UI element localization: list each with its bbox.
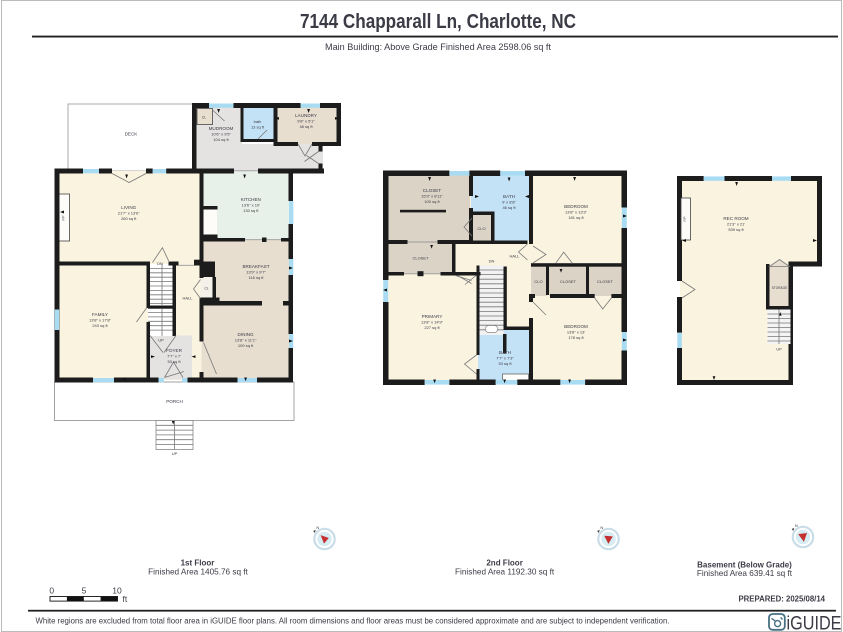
svg-text:10'6" x 9'5": 10'6" x 9'5"	[211, 132, 231, 137]
svg-text:13'6" x 10': 13'6" x 10'	[242, 203, 261, 208]
svg-text:UP: UP	[158, 338, 164, 343]
svg-text:Finished Area 639.41 sq ft: Finished Area 639.41 sq ft	[697, 569, 793, 578]
svg-text:48 sq ft: 48 sq ft	[299, 124, 313, 129]
svg-text:130 sq ft: 130 sq ft	[243, 208, 259, 213]
svg-text:5: 5	[82, 586, 87, 596]
svg-text:MUDROOM: MUDROOM	[209, 126, 234, 131]
svg-text:CLOSET: CLOSET	[560, 279, 577, 284]
svg-text:STORAGE: STORAGE	[772, 286, 788, 290]
svg-text:7144 Chapparall Ln, Charlotte,: 7144 Chapparall Ln, Charlotte, NC	[300, 11, 576, 33]
svg-text:LIVING: LIVING	[121, 205, 136, 210]
svg-text:ft: ft	[123, 594, 128, 604]
svg-text:181 sq ft: 181 sq ft	[568, 215, 584, 220]
svg-text:53 sq ft: 53 sq ft	[167, 359, 181, 364]
svg-text:116 sq ft: 116 sq ft	[248, 275, 264, 280]
svg-text:BATH: BATH	[503, 194, 515, 199]
svg-text:N: N	[600, 525, 603, 530]
svg-text:104 sq ft: 104 sq ft	[213, 137, 229, 142]
svg-text:BATH: BATH	[499, 350, 511, 355]
svg-text:9' x 8'8": 9' x 8'8"	[502, 200, 516, 205]
svg-text:CLOSET: CLOSET	[412, 256, 429, 261]
svg-text:LAUNDRY: LAUNDRY	[295, 113, 317, 118]
svg-text:1st Floor: 1st Floor	[181, 559, 215, 568]
svg-text:13'8" x 11'1": 13'8" x 11'1"	[235, 338, 257, 343]
svg-text:21'7" x 13'6": 21'7" x 13'6"	[118, 211, 141, 216]
svg-text:9'8" x 5'1": 9'8" x 5'1"	[297, 119, 315, 124]
svg-text:White regions are excluded fro: White regions are excluded from total fl…	[36, 617, 670, 626]
svg-text:F/P: F/P	[683, 217, 687, 222]
svg-text:F/P: F/P	[62, 216, 66, 221]
svg-text:N: N	[795, 523, 798, 528]
svg-text:15'3" x 8'11": 15'3" x 8'11"	[421, 194, 443, 199]
svg-text:Finished Area 1192.30 sq ft: Finished Area 1192.30 sq ft	[455, 568, 555, 577]
svg-text:DECK: DECK	[125, 132, 139, 137]
svg-text:DN: DN	[489, 259, 495, 264]
svg-text:2nd Floor: 2nd Floor	[486, 559, 522, 568]
svg-text:13'8" x 14'9": 13'8" x 14'9"	[421, 320, 444, 325]
svg-text:46 sq ft: 46 sq ft	[502, 205, 516, 210]
svg-text:178 sq ft: 178 sq ft	[568, 335, 584, 340]
svg-text:PREPARED: 2025/08/14: PREPARED: 2025/08/14	[738, 595, 825, 604]
svg-text:DN: DN	[157, 261, 163, 266]
svg-text:0: 0	[49, 586, 54, 596]
svg-text:PORCH: PORCH	[166, 399, 183, 404]
svg-text:FOYER: FOYER	[166, 348, 183, 353]
svg-text:243 sq ft: 243 sq ft	[92, 323, 108, 328]
svg-text:13'8" x 13'3": 13'8" x 13'3"	[565, 210, 588, 215]
svg-text:BEDROOM: BEDROOM	[564, 204, 588, 209]
svg-text:CL: CL	[202, 116, 206, 120]
svg-text:KITCHEN: KITCHEN	[241, 197, 261, 202]
svg-text:UP: UP	[776, 347, 782, 352]
svg-text:BEDROOM: BEDROOM	[564, 324, 588, 329]
svg-text:CLOSET: CLOSET	[597, 279, 614, 284]
svg-text:CL: CL	[204, 287, 208, 291]
svg-text:FAMILY: FAMILY	[92, 312, 108, 317]
svg-text:13 sq ft: 13 sq ft	[251, 125, 265, 130]
svg-text:Main Building: Above Grade Fin: Main Building: Above Grade Finished Area…	[325, 42, 551, 53]
svg-text:CLO: CLO	[477, 226, 485, 231]
svg-text:UP: UP	[172, 451, 178, 456]
svg-text:21'3" x 21': 21'3" x 21'	[727, 222, 746, 227]
svg-text:13'8" x 13': 13'8" x 13'	[567, 330, 586, 335]
svg-text:53 sq ft: 53 sq ft	[498, 361, 512, 366]
svg-text:N: N	[316, 525, 319, 530]
svg-text:HALL: HALL	[182, 296, 193, 301]
svg-text:REC ROOM: REC ROOM	[723, 216, 748, 221]
svg-text:CLOSET: CLOSET	[423, 188, 442, 193]
svg-text:DINING: DINING	[238, 332, 255, 337]
svg-text:Finished Area 1405.76 sq ft: Finished Area 1405.76 sq ft	[148, 568, 248, 577]
svg-text:13'9" x 9'7": 13'9" x 9'7"	[246, 270, 266, 275]
svg-text:PRIMARY: PRIMARY	[422, 314, 443, 319]
svg-text:7'7" x 7': 7'7" x 7'	[167, 354, 181, 359]
svg-text:BREAKFAST: BREAKFAST	[242, 264, 269, 269]
svg-text:10: 10	[112, 586, 122, 596]
svg-text:100 sq ft: 100 sq ft	[424, 199, 440, 204]
svg-text:260 sq ft: 260 sq ft	[121, 216, 137, 221]
svg-text:7'7" x 7'3": 7'7" x 7'3"	[496, 356, 514, 361]
svg-text:HALL: HALL	[509, 254, 520, 259]
svg-text:bath: bath	[254, 119, 262, 124]
svg-text:109 sq ft: 109 sq ft	[238, 343, 254, 348]
svg-text:CLO: CLO	[534, 279, 542, 284]
svg-text:iGUIDE: iGUIDE	[787, 614, 842, 632]
svg-text:539 sq ft: 539 sq ft	[728, 227, 744, 232]
svg-text:227 sq ft: 227 sq ft	[424, 325, 440, 330]
svg-text:13'8" x 17'8": 13'8" x 17'8"	[89, 318, 112, 323]
